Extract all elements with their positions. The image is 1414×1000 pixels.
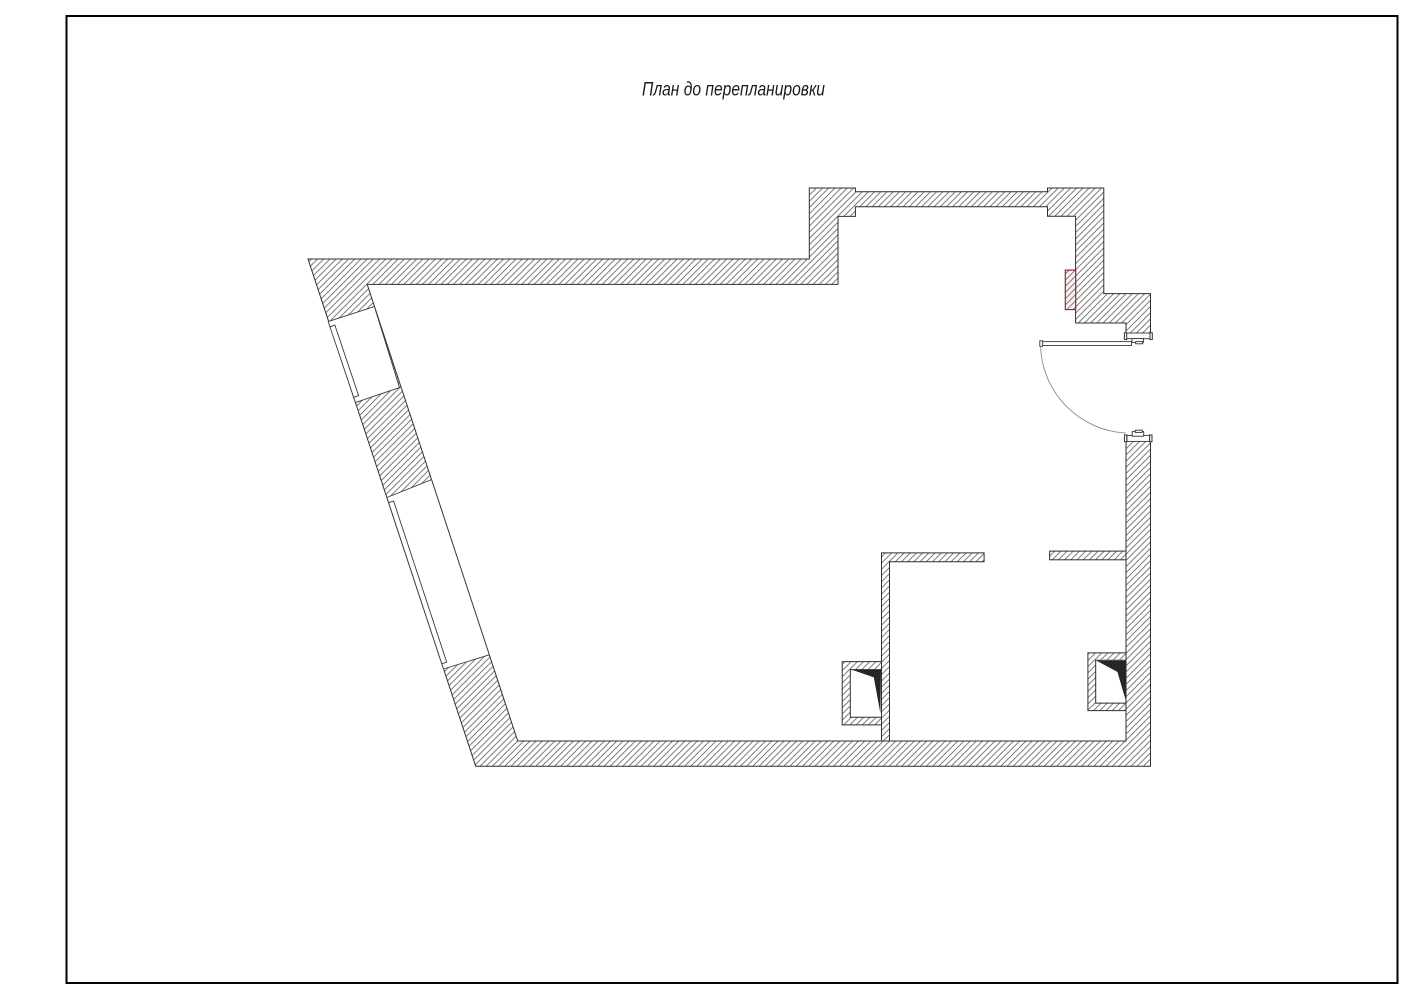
svg-text:План до перепланировки: План до перепланировки [642, 80, 825, 101]
